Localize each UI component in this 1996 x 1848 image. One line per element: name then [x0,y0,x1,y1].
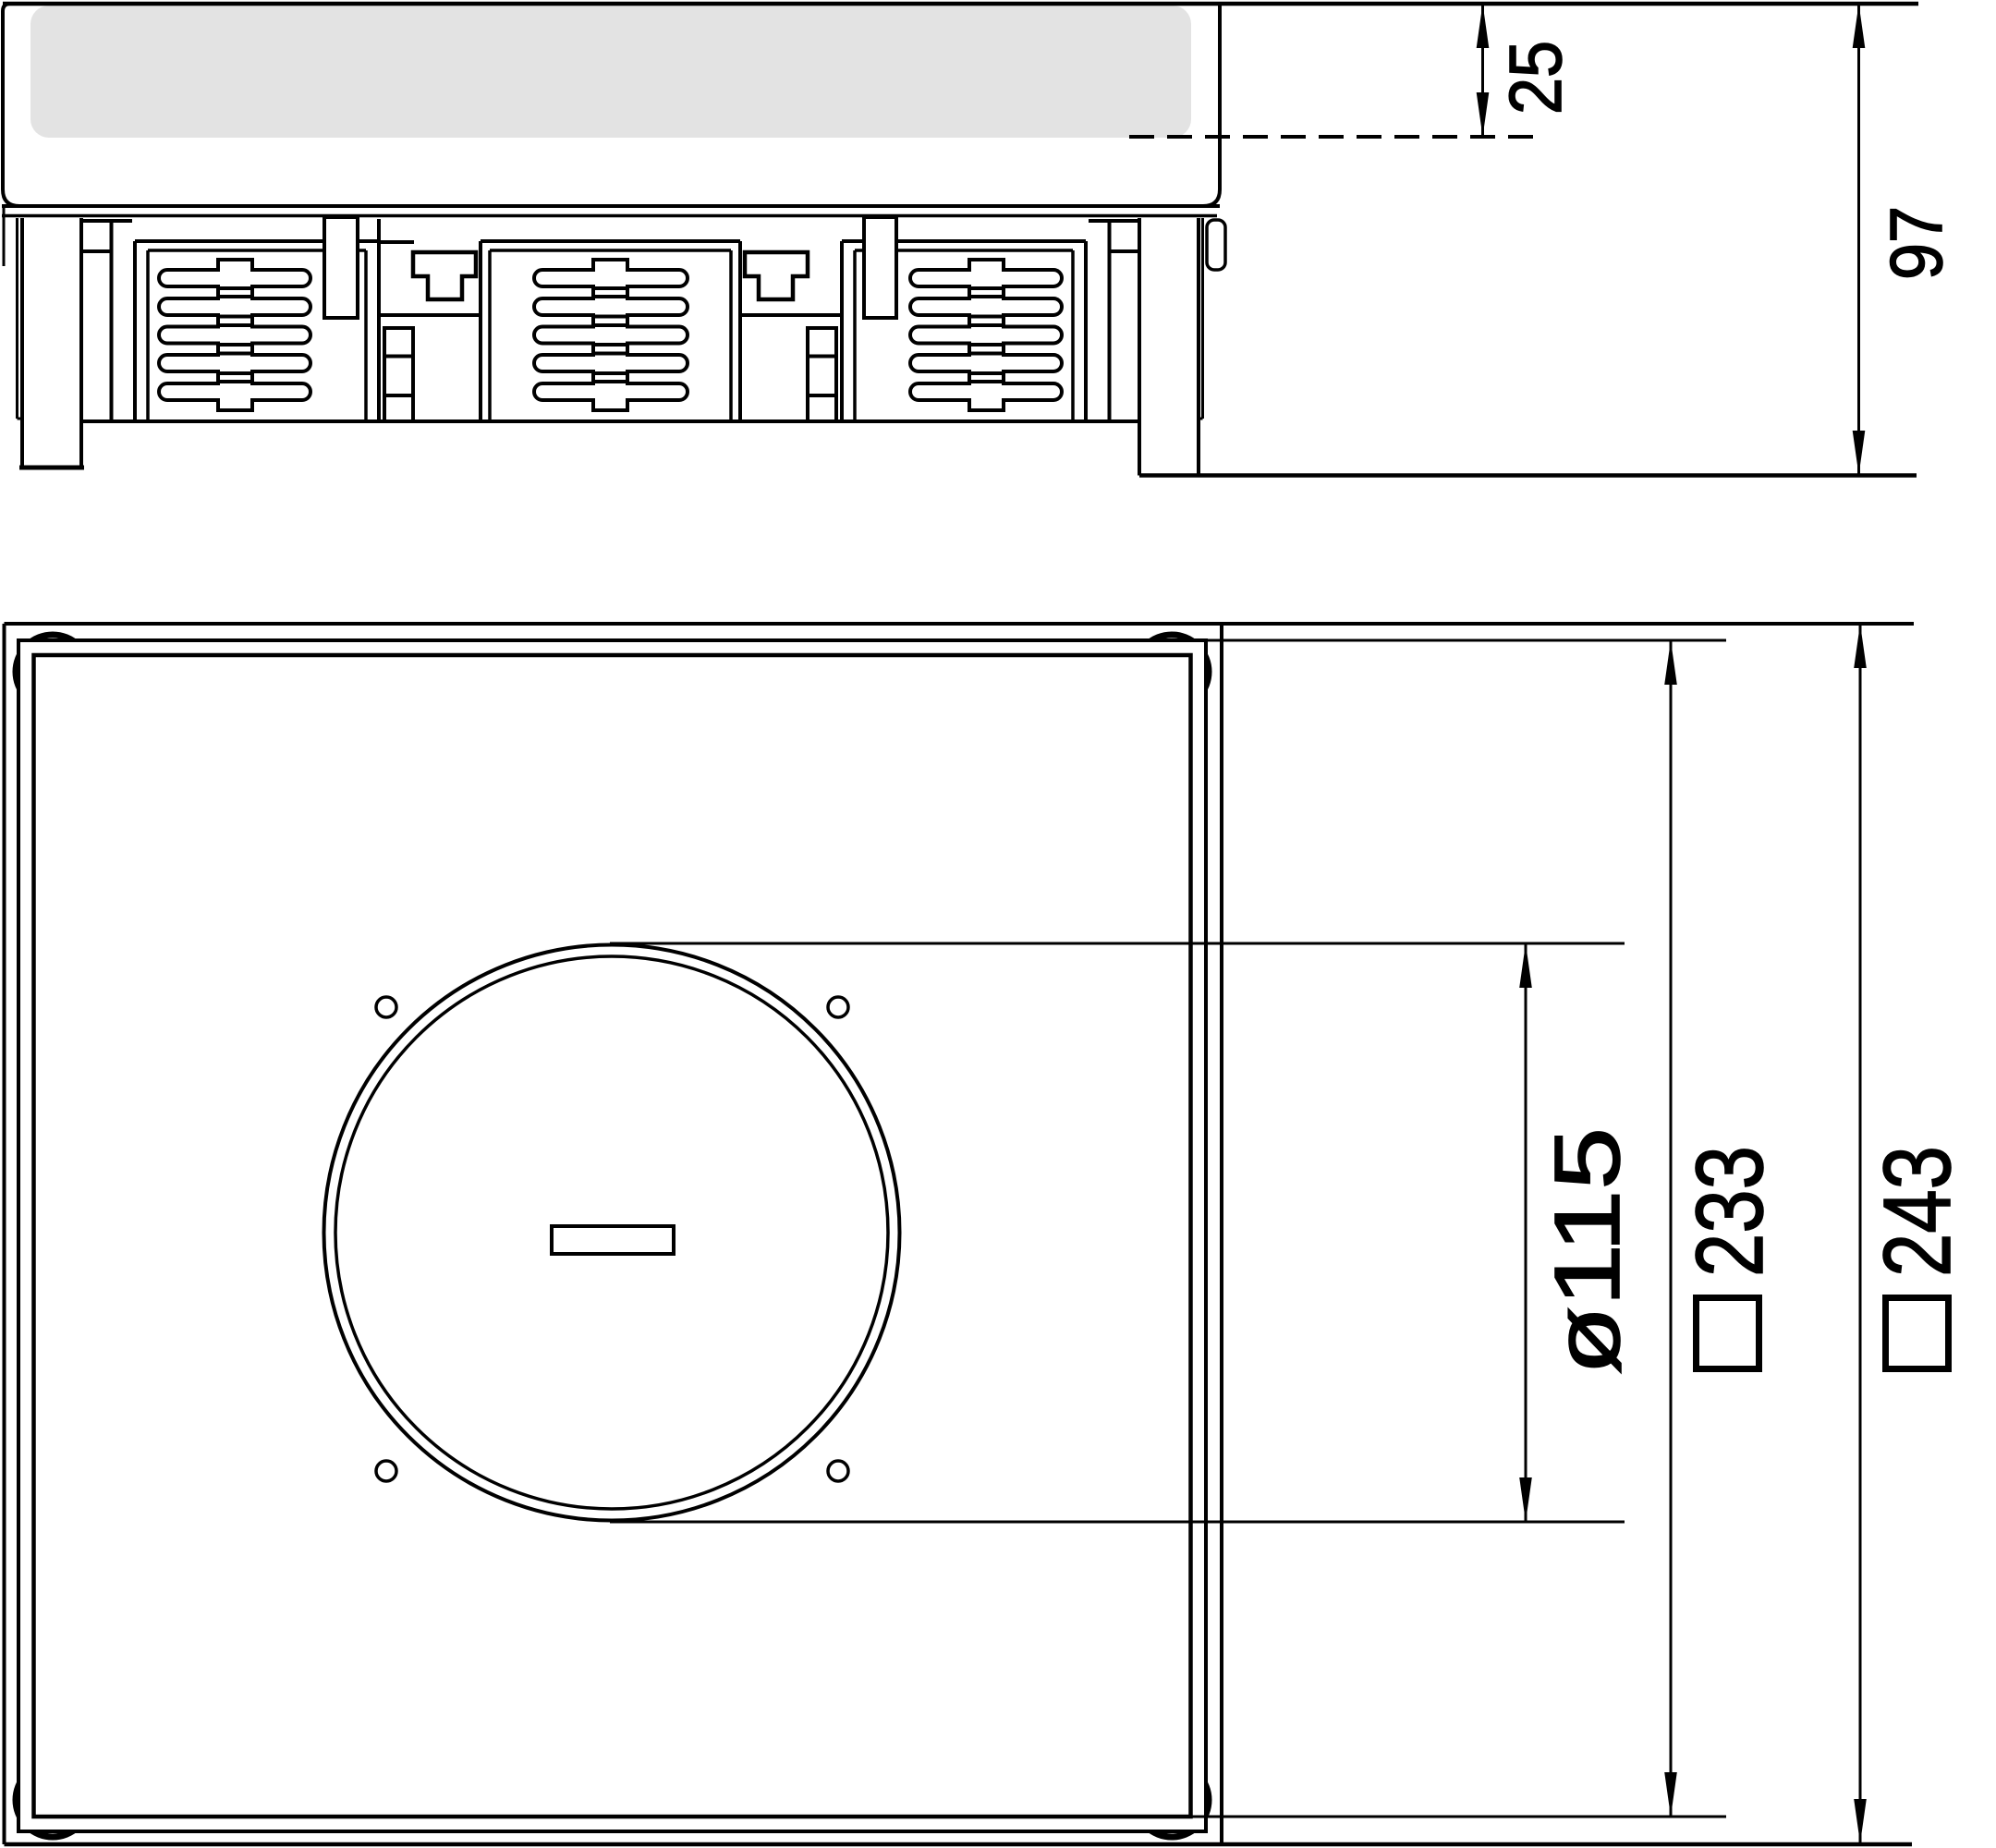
svg-text:25: 25 [1494,41,1576,115]
svg-text:243: 243 [1864,1146,1970,1277]
svg-text:ø115: ø115 [1536,1127,1639,1375]
svg-text:233: 233 [1676,1146,1783,1277]
svg-text:97: 97 [1875,206,1957,280]
